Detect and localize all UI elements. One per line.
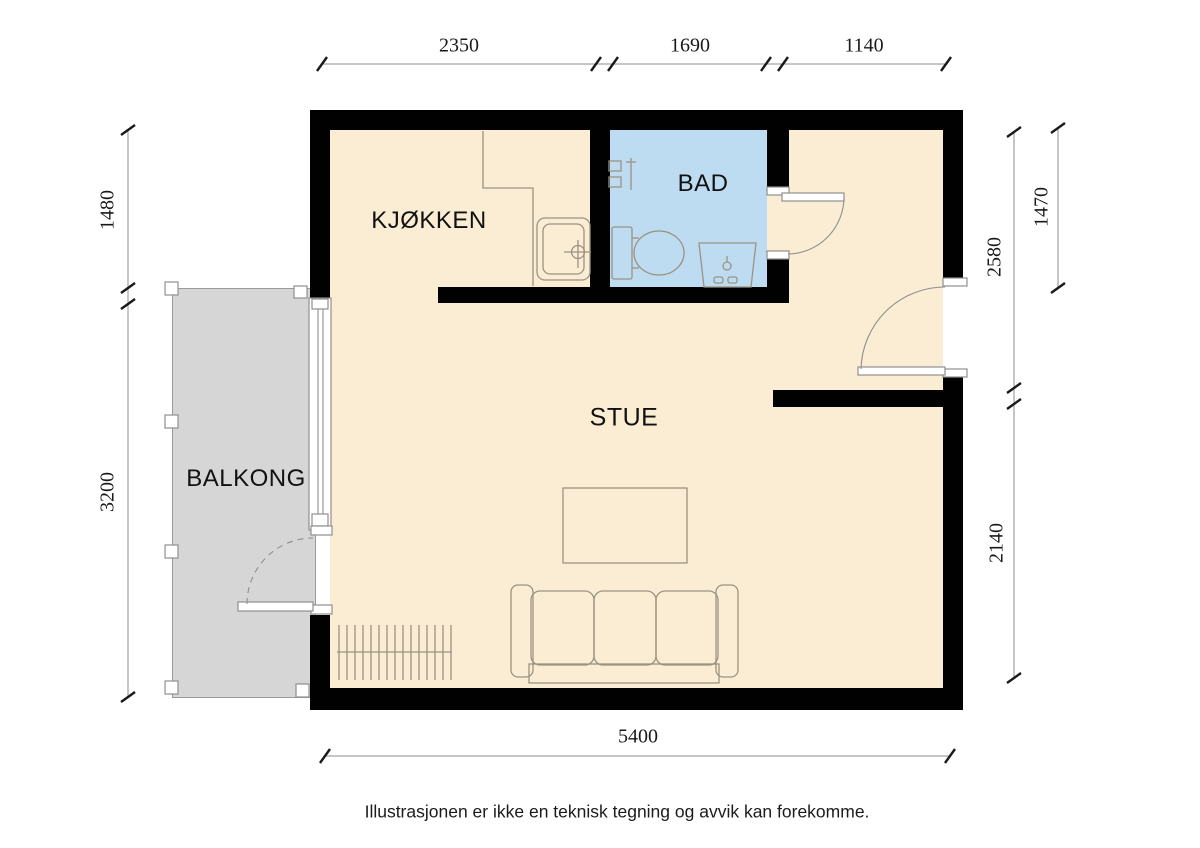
dim-right-outer-1: 1470 — [1031, 187, 1054, 227]
dimension-line-right-inner — [1007, 127, 1021, 683]
dimension-line-left — [121, 125, 135, 702]
balcony-door-icon — [238, 526, 332, 614]
sofa-icon — [511, 585, 738, 683]
dim-left-2: 3200 — [97, 472, 120, 512]
bathroom-sink-icon — [699, 243, 756, 287]
dim-right-inner-2: 2140 — [986, 523, 1009, 563]
dim-bottom-1: 5400 — [618, 726, 658, 749]
room-label-kitchen: KJØKKEN — [371, 207, 487, 235]
shower-mixer-icon — [609, 158, 636, 190]
dim-left-1: 1480 — [97, 190, 120, 230]
toilet-icon — [612, 227, 684, 279]
dim-right-inner-1: 2580 — [984, 237, 1007, 277]
bathroom-door-icon — [767, 187, 844, 259]
dimension-line-top — [317, 57, 951, 71]
coffee-table-icon — [563, 488, 687, 563]
floor-plan: KJØKKEN BAD STUE BALKONG 2350 1690 1140 … — [0, 0, 1200, 848]
entrance-door-icon — [858, 278, 967, 377]
room-label-bath: BAD — [678, 170, 729, 198]
dim-top-1: 2350 — [439, 35, 479, 58]
disclaimer-text: Illustrasjonen er ikke en teknisk tegnin… — [365, 802, 870, 823]
kitchen-sink-icon — [537, 218, 591, 280]
radiator-icon — [337, 625, 452, 680]
room-label-balcony: BALKONG — [186, 465, 306, 493]
kitchen-counter-icon — [483, 131, 533, 286]
room-label-living: STUE — [590, 404, 659, 433]
dim-top-3: 1140 — [844, 35, 883, 58]
dim-top-2: 1690 — [670, 35, 710, 58]
dimension-line-bottom — [320, 749, 955, 763]
window-icon — [309, 298, 331, 530]
